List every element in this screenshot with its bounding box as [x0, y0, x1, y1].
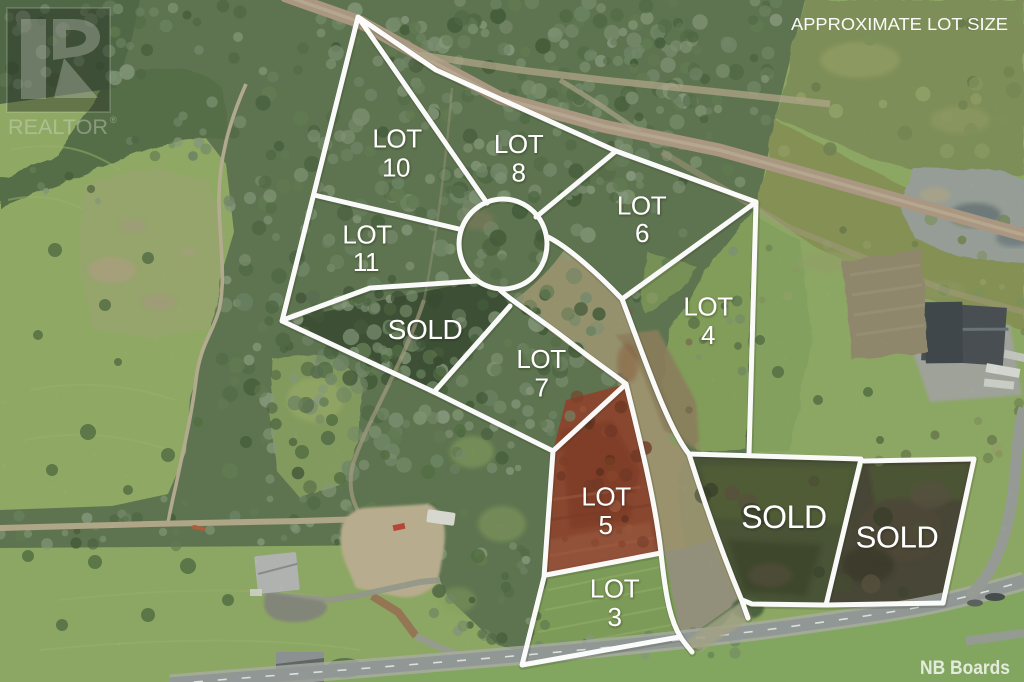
svg-text:SOLD: SOLD	[388, 314, 463, 345]
svg-text:5: 5	[598, 510, 612, 540]
svg-text:6: 6	[635, 218, 649, 248]
svg-text:11: 11	[353, 247, 379, 277]
svg-text:LOT: LOT	[342, 220, 392, 250]
svg-text:LOT: LOT	[683, 292, 733, 322]
svg-text:LOT: LOT	[590, 574, 640, 604]
svg-text:7: 7	[534, 373, 548, 403]
svg-text:8: 8	[511, 158, 525, 188]
svg-text:LOT: LOT	[581, 482, 631, 512]
svg-text:NB Boards: NB Boards	[920, 658, 1010, 679]
svg-text:LOT: LOT	[372, 124, 422, 154]
svg-text:SOLD: SOLD	[856, 520, 939, 555]
svg-text:APPROXIMATE LOT SIZE: APPROXIMATE LOT SIZE	[791, 14, 1008, 34]
svg-text:SOLD: SOLD	[741, 499, 827, 535]
svg-text:LOT: LOT	[516, 344, 566, 374]
svg-text:LOT: LOT	[617, 191, 667, 221]
svg-text:10: 10	[382, 153, 410, 183]
svg-text:4: 4	[701, 320, 715, 350]
svg-text:®: ®	[110, 115, 117, 125]
svg-text:REALTOR: REALTOR	[8, 116, 108, 139]
svg-text:LOT: LOT	[494, 129, 544, 159]
svg-text:3: 3	[607, 602, 621, 632]
